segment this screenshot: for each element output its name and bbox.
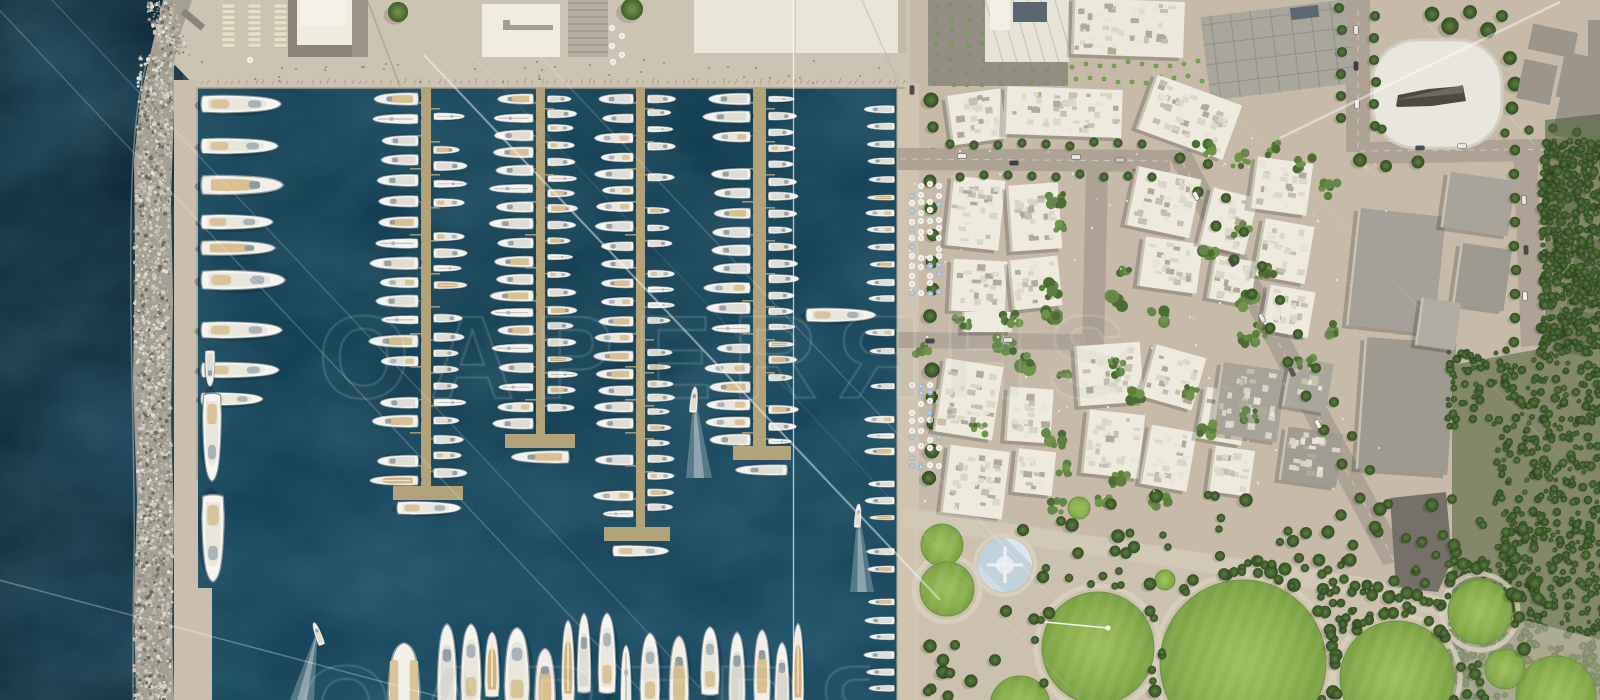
svg-text:OAPERЯHS: OAPERЯHS bbox=[318, 292, 1146, 424]
